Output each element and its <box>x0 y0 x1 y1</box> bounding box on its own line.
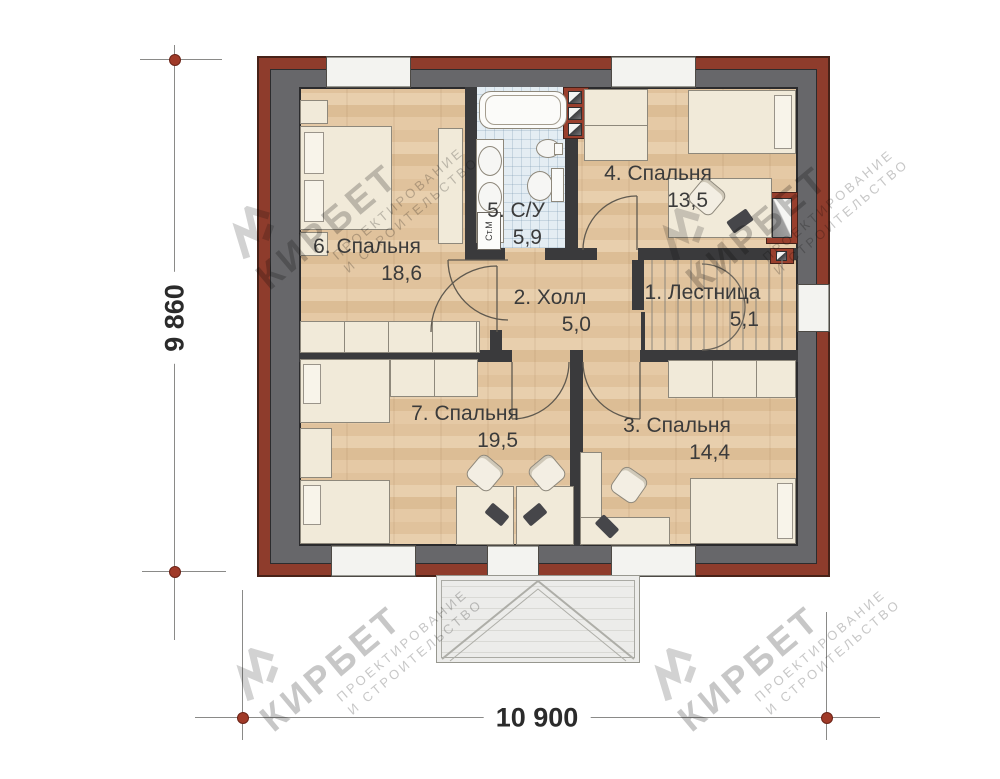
pillow <box>774 95 792 149</box>
wardrobe <box>668 360 796 398</box>
dimension-marker-dot <box>237 712 249 724</box>
room-area: 19,5 <box>400 427 530 454</box>
vent-icon <box>776 251 787 261</box>
height-dimension-label: 9 860 <box>159 272 192 364</box>
room-name: 3. Спальня <box>612 412 742 439</box>
window <box>611 545 696 577</box>
dimension-marker-dot <box>169 54 181 66</box>
room-area: 18,6 <box>302 260 432 287</box>
room-area: 14,4 <box>612 439 742 466</box>
dimension-marker-dot <box>821 712 833 724</box>
wardrobe <box>438 128 463 244</box>
nightstand <box>300 100 328 124</box>
cabinet-row <box>390 359 478 397</box>
kirbet-logo-icon <box>640 639 708 706</box>
floor-plan-sheet: 9 860 10 900 Ст.М <box>0 0 1000 779</box>
room-label-bedroom-7: 7. Спальня 19,5 <box>400 400 530 454</box>
vent-icon <box>568 123 582 136</box>
window <box>611 56 696 88</box>
bathtub-inner <box>485 95 561 125</box>
sink <box>478 146 502 176</box>
dimension-tick <box>142 571 226 572</box>
room-label-bedroom-4: 4. Спальня 13,5 <box>598 160 718 214</box>
pillow <box>304 132 324 174</box>
room-label-hall-2: 2. Холл 5,0 <box>495 284 605 338</box>
vent-icon <box>568 91 582 104</box>
pillow <box>304 180 324 222</box>
room-name: 1. Лестница <box>640 279 765 306</box>
vent-icon <box>568 107 582 120</box>
room-label-bathroom-5: 5. С/У 5,9 <box>470 197 562 251</box>
room-name: 7. Спальня <box>400 400 530 427</box>
window <box>797 284 830 332</box>
cabinet-row <box>300 321 480 353</box>
room-area: 5,1 <box>640 306 765 333</box>
wardrobe <box>584 89 648 161</box>
vent-icon <box>772 198 792 238</box>
wall-segment <box>565 135 578 260</box>
wall-segment <box>570 350 583 362</box>
desk <box>580 517 670 545</box>
room-name: 6. Спальня <box>302 233 432 260</box>
dimension-tick <box>140 59 222 60</box>
kirbet-logo-icon <box>222 639 290 706</box>
room-name: 5. С/У <box>470 197 562 224</box>
room-label-stairs-1: 1. Лестница 5,1 <box>640 279 765 333</box>
bidet-tank <box>554 143 563 155</box>
pillow <box>303 485 321 525</box>
porch-roof <box>436 575 640 663</box>
room-area: 5,0 <box>495 311 605 338</box>
window <box>326 56 411 88</box>
pillow <box>303 364 321 404</box>
room-area: 5,9 <box>470 224 562 251</box>
window <box>331 545 416 577</box>
pillow <box>777 483 793 539</box>
dimension-marker-dot <box>169 566 181 578</box>
room-label-bedroom-3: 3. Спальня 14,4 <box>612 412 742 466</box>
dresser <box>300 428 332 478</box>
width-dimension-label: 10 900 <box>484 702 591 735</box>
room-name: 2. Холл <box>495 284 605 311</box>
balcony-door <box>487 545 539 577</box>
room-name: 4. Спальня <box>598 160 718 187</box>
room-area: 13,5 <box>598 187 718 214</box>
room-label-bedroom-6: 6. Спальня 18,6 <box>302 233 432 287</box>
